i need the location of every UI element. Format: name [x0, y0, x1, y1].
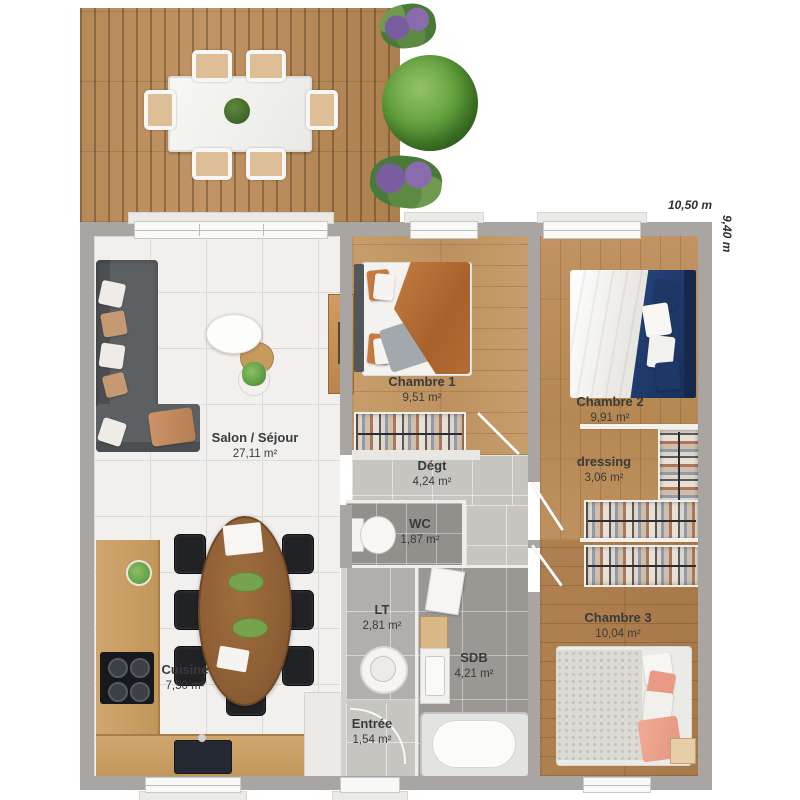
- room-name: Dégt: [413, 458, 452, 475]
- dining-chair: [174, 534, 206, 574]
- room-name: Chambre 2: [576, 394, 643, 411]
- cooktop-burner: [108, 658, 128, 678]
- closet-chambre3: [584, 545, 700, 587]
- room-area: 10,04 m²: [584, 627, 651, 642]
- sofa-pillow: [98, 280, 126, 308]
- washing-machine-drum: [370, 656, 396, 682]
- room-name: Entrée: [352, 716, 392, 733]
- bed-headboard: [684, 270, 696, 398]
- room-area: 27,11 m²: [212, 447, 299, 462]
- wall-sdb-chambre3: [528, 592, 540, 776]
- room-area: 7,50 m²: [162, 679, 209, 694]
- label-dressing: dressing 3,06 m²: [577, 454, 631, 486]
- wall-wc-top: [346, 500, 466, 503]
- toilet: [348, 514, 396, 554]
- corridor-floor: [466, 505, 528, 568]
- counter-plant: [126, 560, 152, 586]
- room-name: SDB: [455, 650, 494, 667]
- coffee-table: [206, 314, 262, 354]
- terrace-centerpiece-plant: [224, 98, 250, 124]
- window-mullion: [199, 224, 200, 236]
- bed-knit-blanket: [556, 650, 642, 760]
- bed-headboard: [354, 264, 364, 372]
- cooktop-burner: [130, 682, 150, 702]
- room-area: 9,51 m²: [388, 391, 455, 406]
- label-chambre3: Chambre 3 10,04 m²: [584, 610, 651, 642]
- nightstand: [670, 738, 696, 764]
- bed-chambre2: [570, 270, 696, 398]
- table-runner: [223, 522, 264, 556]
- label-chambre2: Chambre 2 9,91 m²: [576, 394, 643, 426]
- room-name: WC: [401, 516, 440, 533]
- dimension-width-label: 10,50 m: [630, 198, 712, 212]
- wall-wc-right: [462, 503, 466, 567]
- bathtub-basin: [432, 720, 516, 768]
- floor-plan: Salon / Séjour 27,11 m² Cuisine 7,50 m² …: [0, 0, 800, 800]
- indoor-plant: [242, 362, 266, 386]
- sofa-throw-blanket: [148, 407, 196, 447]
- window-cuisine: [145, 777, 241, 793]
- dimension-height-label: 9,40 m: [720, 215, 734, 275]
- front-door: [340, 777, 400, 793]
- cooktop-burner: [108, 682, 128, 702]
- window-chambre1: [410, 221, 478, 239]
- bush-plant: [382, 55, 478, 151]
- kitchen-cabinet: [304, 692, 342, 778]
- cooktop-burner: [130, 658, 150, 678]
- vanity-basin: [425, 656, 445, 696]
- bed-pillow: [655, 361, 681, 391]
- room-name: LT: [363, 602, 402, 619]
- label-lt: LT 2,81 m²: [363, 602, 402, 634]
- room-name: Chambre 1: [388, 374, 455, 391]
- terrace-chair: [192, 50, 232, 82]
- label-sdb: SDB 4,21 m²: [455, 650, 494, 682]
- kitchen-faucet: [198, 734, 206, 742]
- room-area: 9,91 m²: [576, 411, 643, 426]
- sofa-pillow: [98, 342, 125, 369]
- wardrobe-dressing-right: [658, 428, 700, 506]
- wall-salon-chambre1: [340, 236, 352, 455]
- wall-exterior-left: [80, 236, 94, 776]
- bed-chambre1: [354, 262, 470, 374]
- room-name: Chambre 3: [584, 610, 651, 627]
- window-chambre3: [583, 777, 651, 793]
- wall-salon-wc: [340, 505, 352, 568]
- wall-lt-sdb: [415, 567, 418, 776]
- room-area: 1,87 m²: [401, 533, 440, 548]
- label-degt: Dégt 4,24 m²: [413, 458, 452, 490]
- room-name: dressing: [577, 454, 631, 471]
- room-area: 4,21 m²: [455, 667, 494, 682]
- bay-window-salon: [134, 221, 328, 239]
- label-cuisine: Cuisine 7,50 m²: [162, 662, 209, 694]
- vanity-shelf: [420, 616, 448, 650]
- room-area: 4,24 m²: [413, 475, 452, 490]
- window-mullion: [263, 224, 264, 236]
- room-name: Cuisine: [162, 662, 209, 679]
- room-name: Salon / Séjour: [212, 430, 299, 447]
- bed-pillow: [373, 273, 396, 301]
- room-area: 1,54 m²: [352, 733, 392, 748]
- sofa-pillow: [100, 310, 128, 338]
- terrace-chair: [246, 50, 286, 82]
- wardrobe-dressing-bottom: [584, 500, 700, 542]
- table-plate: [232, 618, 268, 638]
- wall-dressing-chambre3: [580, 538, 698, 542]
- wall-lt-entree: [346, 700, 415, 703]
- toilet-bowl: [360, 516, 396, 554]
- wall-sdb-degt: [418, 565, 528, 568]
- label-wc: WC 1,87 m²: [401, 516, 440, 548]
- terrace-chair: [144, 90, 176, 130]
- table-plate: [228, 572, 264, 592]
- bed-pillow: [642, 302, 673, 338]
- partition-cuisine-lt: [341, 568, 346, 776]
- terrace-chair: [306, 90, 338, 130]
- terrace-chair: [192, 148, 232, 180]
- label-chambre1: Chambre 1 9,51 m²: [388, 374, 455, 406]
- room-area: 3,06 m²: [577, 471, 631, 486]
- wall-chambre1-chambre2: [528, 236, 540, 482]
- wall-exterior-right: [698, 236, 712, 776]
- terrace-chair: [246, 148, 286, 180]
- label-salon: Salon / Séjour 27,11 m²: [212, 430, 299, 462]
- window-chambre2: [543, 221, 641, 239]
- label-entree: Entrée 1,54 m²: [352, 716, 392, 748]
- room-area: 2,81 m²: [363, 619, 402, 634]
- kitchen-sink: [174, 740, 232, 774]
- door-leaf-sdb: [425, 567, 465, 616]
